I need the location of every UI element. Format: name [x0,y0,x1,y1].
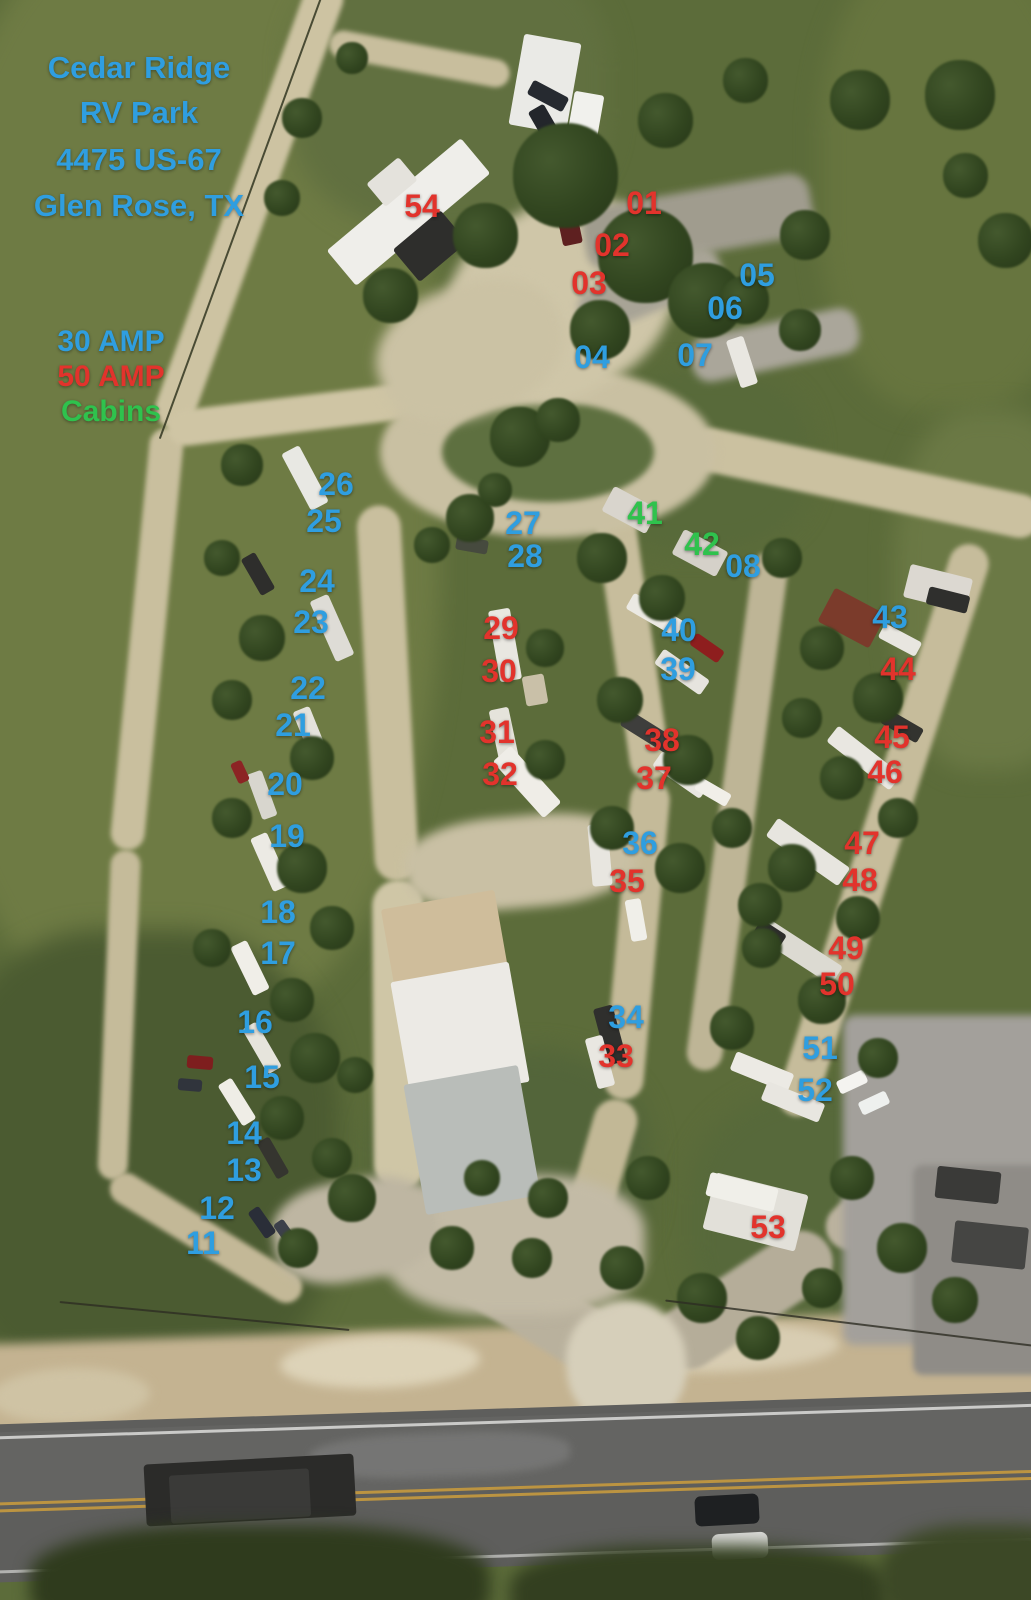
site-label-16: 16 [237,1006,273,1038]
site-label-37: 37 [636,762,672,794]
site-label-39: 39 [660,653,696,685]
park-name-line2: RV Park [0,97,280,128]
site-label-53: 53 [750,1211,786,1243]
site-label-43: 43 [872,601,908,633]
site-label-49: 49 [828,932,864,964]
site-label-28: 28 [507,540,543,572]
site-label-47: 47 [844,827,880,859]
site-label-44: 44 [880,653,916,685]
site-label-18: 18 [260,896,296,928]
site-label-08: 08 [725,550,761,582]
park-address-city: Glen Rose, TX [0,190,280,221]
site-label-31: 31 [479,716,515,748]
site-label-42: 42 [684,528,720,560]
aerial-map: Cedar Ridge RV Park 4475 US-67 Glen Rose… [0,0,1031,1600]
site-labels-layer: 0102030405060708111213141516171819202122… [0,0,1031,1600]
site-label-40: 40 [661,614,697,646]
site-label-30: 30 [481,655,517,687]
site-label-26: 26 [318,468,354,500]
legend-50amp: 50 AMP [25,362,197,392]
site-label-52: 52 [797,1074,833,1106]
site-label-21: 21 [275,709,311,741]
site-label-06: 06 [707,292,743,324]
legend-30amp: 30 AMP [25,327,197,357]
site-label-02: 02 [594,229,630,261]
site-label-22: 22 [290,672,326,704]
site-label-24: 24 [299,565,335,597]
site-label-51: 51 [802,1032,838,1064]
site-label-45: 45 [874,721,910,753]
site-label-01: 01 [626,187,662,219]
site-label-41: 41 [627,497,663,529]
site-label-15: 15 [244,1061,280,1093]
site-label-36: 36 [622,827,658,859]
site-label-12: 12 [199,1192,235,1224]
park-name-line1: Cedar Ridge [0,52,280,83]
site-label-13: 13 [226,1154,262,1186]
site-label-20: 20 [267,768,303,800]
site-label-23: 23 [293,606,329,638]
site-label-46: 46 [867,756,903,788]
site-label-33: 33 [598,1040,634,1072]
site-label-03: 03 [571,267,607,299]
site-label-32: 32 [482,758,518,790]
site-label-35: 35 [609,865,645,897]
legend-cabins: Cabins [25,397,197,427]
park-address-street: 4475 US-67 [0,144,280,175]
site-label-17: 17 [260,937,296,969]
site-label-05: 05 [739,259,775,291]
site-label-48: 48 [842,864,878,896]
site-label-50: 50 [819,968,855,1000]
site-label-07: 07 [677,339,713,371]
site-label-34: 34 [608,1001,644,1033]
site-label-27: 27 [505,507,541,539]
site-label-54: 54 [404,190,440,222]
site-label-04: 04 [574,341,610,373]
site-label-38: 38 [644,724,680,756]
site-label-14: 14 [226,1117,262,1149]
site-label-25: 25 [306,505,342,537]
site-label-29: 29 [483,612,519,644]
site-label-11: 11 [186,1227,220,1259]
site-label-19: 19 [269,820,305,852]
